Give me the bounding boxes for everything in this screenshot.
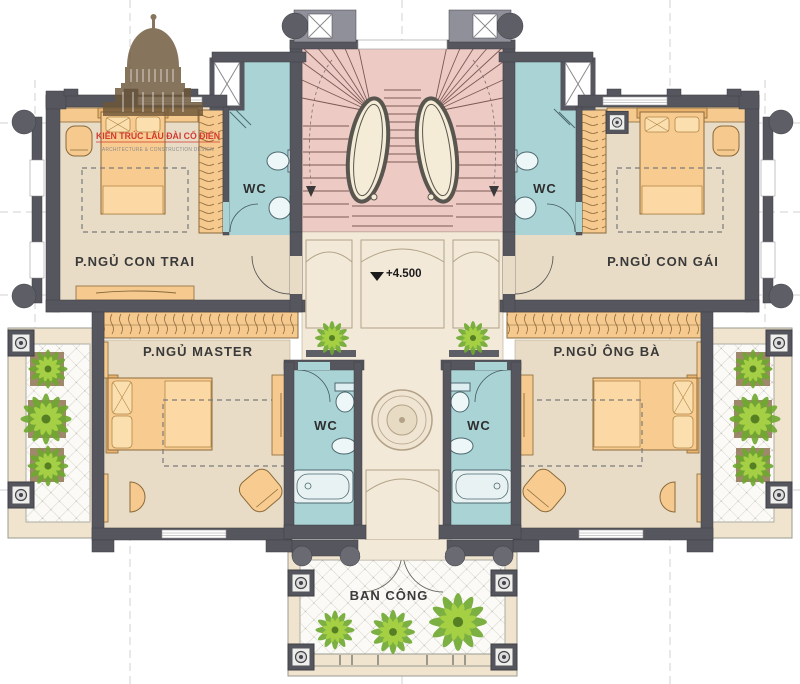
window [603,97,667,105]
logo-title: KIẾN TRÚC LÂU ĐÀI CỔ ĐIỂN [96,130,220,142]
bedroom-daughter-label: P.NGỦ CON GÁI [607,254,719,269]
window [162,530,226,538]
bedroom-son-label: P.NGỦ CON TRAI [75,254,195,269]
column-cap [288,644,314,670]
bed [593,375,699,453]
floor-plan: BAN CÔNG [0,0,800,684]
column-cap [8,330,34,356]
wc-label: WC [243,181,267,196]
staircase [302,44,503,232]
wc-label: WC [467,418,491,433]
bed [106,375,212,453]
elevation-label: +4.500 [386,268,422,280]
logo-subtitle: ARCHITECTURE & CONSTRUCTION DESIGN [102,147,214,153]
bedroom-master-label: P.NGỦ MASTER [143,344,253,359]
window [579,530,643,538]
wc-bottom-right: WC [447,368,513,525]
balcony-label: BAN CÔNG [350,588,429,603]
terrace-right [702,328,792,538]
column-cap [606,111,628,133]
floor-medallion [372,390,432,450]
column-cap [766,482,792,508]
floor-plan-drawing: BAN CÔNG [0,0,800,684]
column-cap [288,570,314,596]
armchair [713,126,739,156]
column-cap [491,644,517,670]
balcony-door-opening [360,540,445,556]
column-cap [766,330,792,356]
armchair [66,126,92,156]
column-cap [491,570,517,596]
terrace-left [8,328,98,538]
balcony: BAN CÔNG [288,552,517,676]
bedroom-grandparents: P.NGỦ ÔNG BÀ [510,340,709,528]
wc-label: WC [314,418,338,433]
stair-top-opening [358,40,447,49]
bed [637,108,707,214]
console [76,286,194,300]
bedroom-master: P.NGỦ MASTER [96,340,295,528]
wc-label: WC [533,181,557,196]
wc-bottom-left: WC [292,368,358,525]
bed [98,108,168,214]
bedroom-grandparents-label: P.NGỦ ÔNG BÀ [553,344,660,359]
logo: KIẾN TRÚC LÂU ĐÀI CỔ ĐIỂN ARCHITECTURE &… [96,14,220,153]
column-cap [8,482,34,508]
